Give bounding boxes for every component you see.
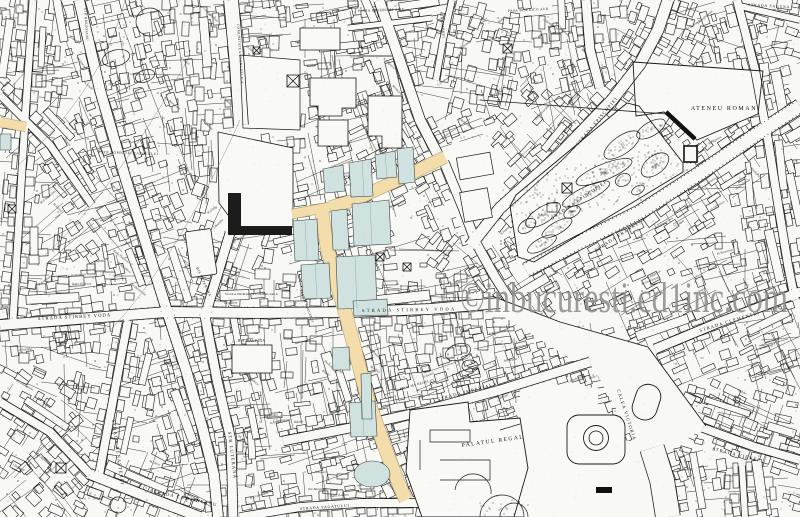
svg-text:Wisslearm: Wisslearm: [224, 301, 238, 305]
svg-text:Zoe.Bassaraba: Zoe.Bassaraba: [308, 487, 328, 491]
svg-text:D.Sturdza: D.Sturdza: [190, 297, 204, 301]
svg-text:Radu.Vladescu: Radu.Vladescu: [71, 282, 92, 286]
svg-text:St.Ioanid: St.Ioanid: [315, 470, 327, 474]
svg-text:ATENEU ROMAN: ATENEU ROMAN: [691, 106, 757, 112]
svg-text:Bakder: Bakder: [294, 419, 304, 424]
